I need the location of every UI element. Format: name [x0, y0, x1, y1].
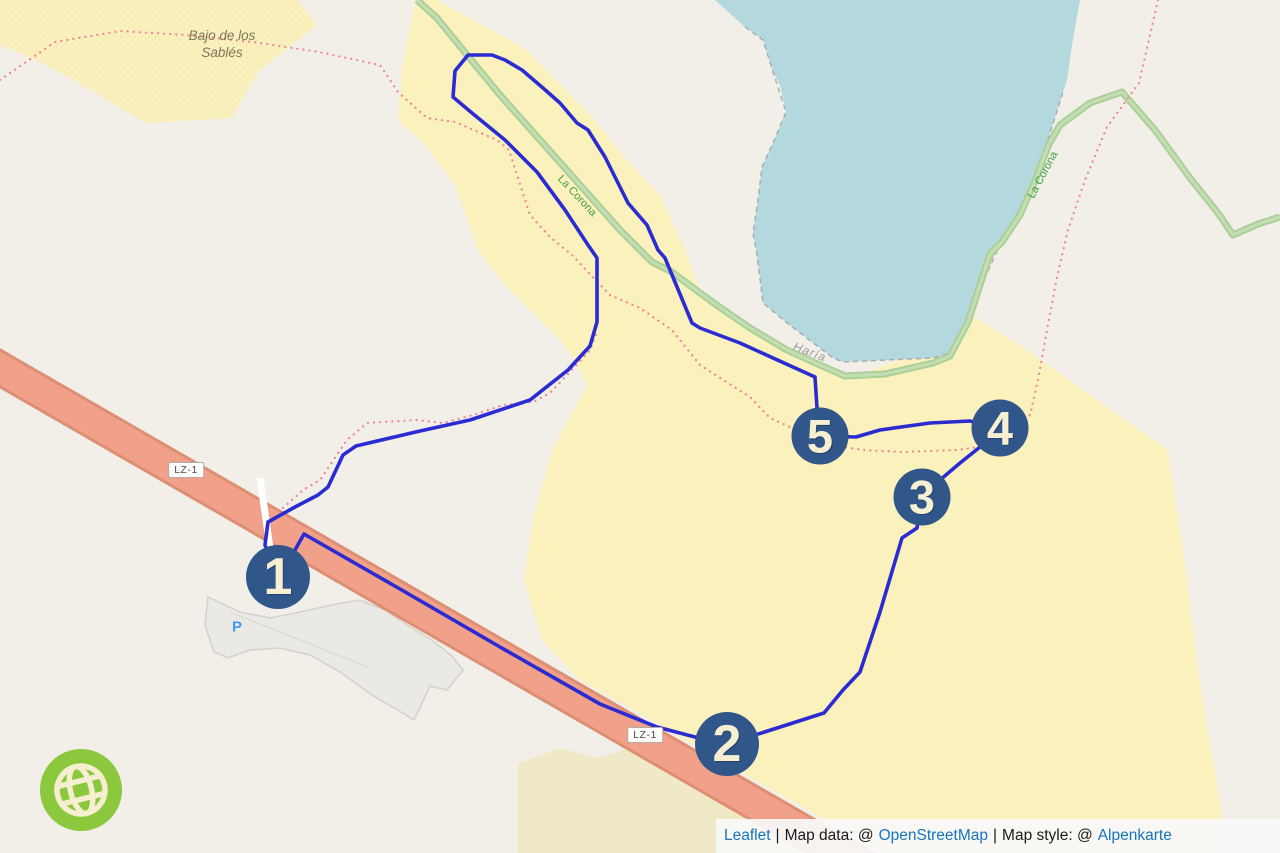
route-marker-4[interactable]: 4 [972, 400, 1029, 457]
globe-logo-icon [39, 748, 123, 832]
basemap-layers [0, 0, 1280, 853]
alpenkarte-link[interactable]: Alpenkarte [1098, 827, 1172, 844]
route-marker-2[interactable]: 2 [695, 712, 759, 776]
map-style-prefix: Map style: @ [1002, 827, 1093, 845]
leaflet-link[interactable]: Leaflet [724, 827, 771, 844]
road-ref-badge-1: LZ-1 [168, 462, 204, 478]
attribution-bar: Leaflet | Map data: @ OpenStreetMap | Ma… [716, 819, 1280, 853]
openstreetmap-link[interactable]: OpenStreetMap [879, 827, 988, 844]
road-ref-badge-2: LZ-1 [627, 727, 663, 743]
route-marker-5[interactable]: 5 [792, 408, 849, 465]
route-marker-3[interactable]: 3 [894, 469, 951, 526]
route-marker-1[interactable]: 1 [246, 545, 310, 609]
map-data-prefix: Map data: @ [785, 827, 874, 845]
attribution-separator-2: | [993, 827, 997, 845]
map-canvas[interactable]: Bajo de los Sablés La Corona La Corona H… [0, 0, 1280, 853]
attribution-separator: | [776, 827, 780, 845]
